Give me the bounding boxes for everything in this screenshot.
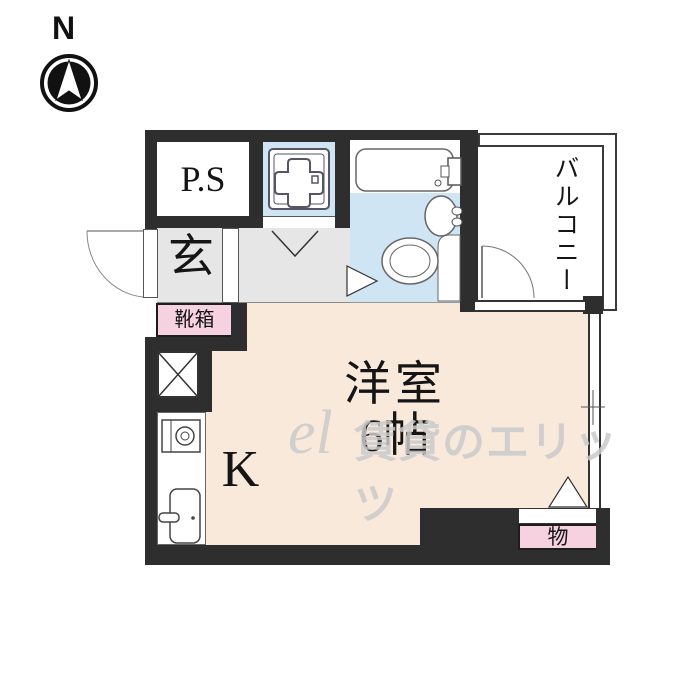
wall-segment (145, 337, 245, 351)
entrance-partition (222, 228, 239, 303)
shaft-box (157, 351, 199, 398)
left-wall (145, 337, 157, 565)
storage-box: 物 (518, 524, 598, 550)
right-window (588, 312, 601, 508)
entrance-label: 玄 (162, 234, 220, 280)
balcony-window (475, 300, 585, 312)
kitchen-label: K (213, 444, 268, 496)
wall-segment (583, 296, 603, 314)
main-room-label: 洋室 (330, 362, 460, 409)
wall-segment (596, 508, 610, 565)
balcony-label: バルコニー (541, 149, 577, 301)
pipe-space-box: P.S (157, 142, 249, 216)
front-door (143, 229, 158, 298)
wall-segment (145, 398, 211, 412)
front-door-swing (87, 231, 143, 297)
wall-segment (420, 508, 518, 565)
bathroom-right-wall (460, 130, 478, 312)
bathroom-floor (350, 193, 460, 302)
compass-icon (38, 52, 100, 114)
shoe-box: 靴箱 (156, 303, 233, 337)
compass-north-label: N (52, 12, 75, 44)
floor-plan: N バルコニー P.S 玄 靴箱 物 洋室 6帖 K (0, 0, 700, 700)
washer-pan (263, 142, 335, 216)
kitchen-counter (157, 412, 206, 545)
storage-shelf-strip (518, 508, 598, 524)
main-room-size-label: 6帖 (330, 413, 460, 460)
